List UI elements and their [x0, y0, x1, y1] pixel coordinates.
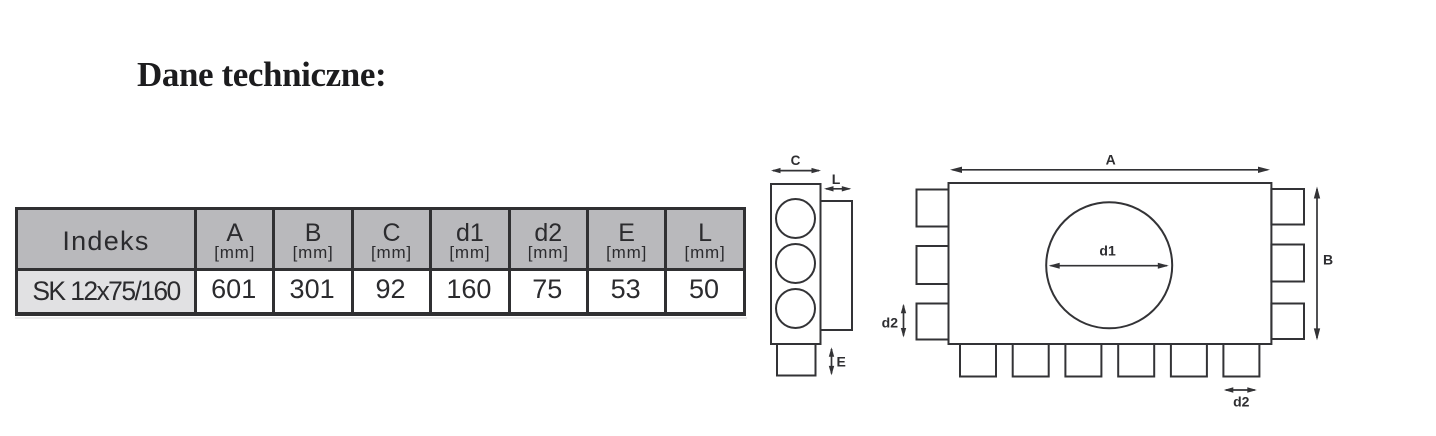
svg-text:A: A [1106, 152, 1116, 168]
svg-text:d2: d2 [882, 315, 899, 331]
svg-text:d1: d1 [1099, 242, 1116, 258]
svg-text:C: C [791, 153, 801, 168]
svg-text:E: E [837, 354, 846, 370]
svg-text:L: L [832, 171, 841, 187]
svg-text:d2: d2 [1233, 394, 1250, 410]
svg-text:B: B [1323, 252, 1333, 268]
